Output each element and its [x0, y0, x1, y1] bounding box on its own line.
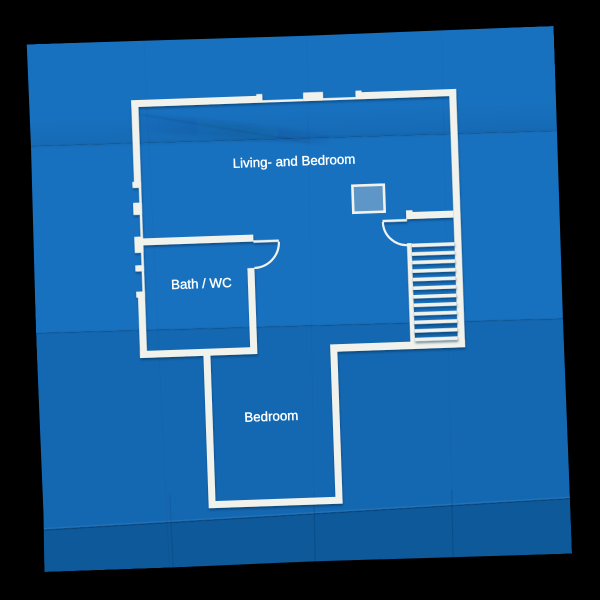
svg-text:Bedroom: Bedroom — [244, 408, 298, 425]
svg-text:Bath / WC: Bath / WC — [171, 275, 232, 292]
